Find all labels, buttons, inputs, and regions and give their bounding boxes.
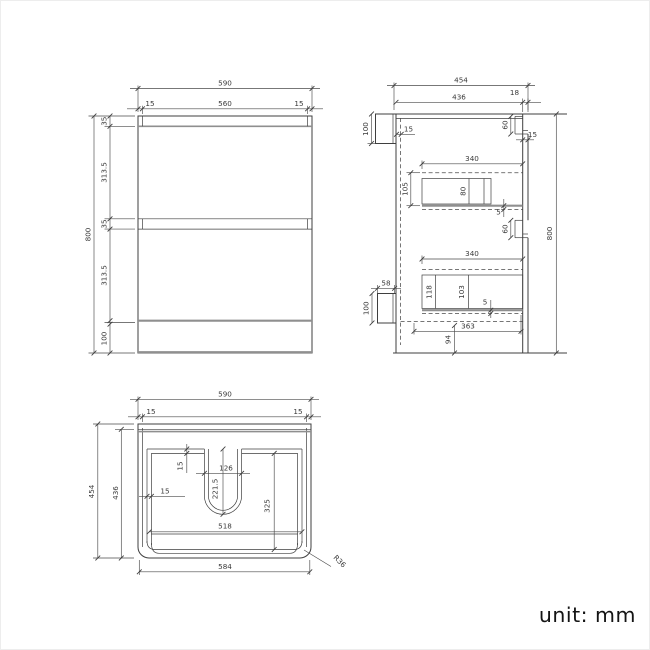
dim-side-carcass-depth: 436 (452, 93, 466, 102)
front-view: 590 15 560 15 35 313.5 35 (84, 79, 324, 356)
dim-front-top-panel: 35 (100, 117, 109, 126)
dim-side-notch-mid: 60 (500, 224, 509, 234)
dim-plan-wall-left: 15 (160, 487, 169, 496)
side-view: 454 436 18 100 15 60 15 (361, 76, 567, 356)
dim-side-base-offset: 94 (444, 335, 453, 345)
front-view-outline (138, 116, 312, 353)
dim-plan-cutout-depth: 221.5 (211, 479, 220, 500)
dim-plan-inset-right: 15 (293, 407, 302, 416)
dim-side-drawer-top-depth: 340 (465, 154, 479, 163)
dim-side-overall-height: 800 (545, 226, 554, 240)
dim-plan-wall-back: 15 (175, 461, 184, 470)
dim-plan-inner-depth: 436 (111, 486, 120, 500)
dim-plan-base-width: 584 (218, 562, 232, 571)
dim-side-notch-top: 60 (500, 120, 509, 130)
dim-side-overall-depth: 454 (454, 76, 468, 85)
dim-side-drawer-bottom-depth: 340 (465, 249, 479, 258)
dim-plan-overall-depth: 454 (87, 484, 96, 498)
dim-front-drawer-lower: 313.5 (100, 265, 109, 286)
dim-front-overall-height: 800 (84, 227, 93, 241)
dim-plan-corner-radius: R36 (332, 553, 349, 570)
dim-side-base-depth: 363 (461, 322, 475, 331)
unit-label: unit: mm (539, 603, 636, 627)
dim-plan-cavity-depth: 325 (263, 499, 272, 513)
dim-side-back-panel: 15 (404, 125, 413, 134)
dim-plan-cavity-width: 518 (218, 522, 232, 531)
drawing-svg: 590 15 560 15 35 313.5 35 (1, 1, 650, 650)
dim-side-drawer-top-height: 105 (400, 182, 409, 196)
plan-view-dimensions: 590 15 15 454 436 15 (87, 390, 348, 576)
dim-plan-overall-width: 590 (218, 390, 232, 399)
plan-view: 590 15 15 454 436 15 (87, 390, 348, 576)
dim-front-inset-left: 15 (145, 99, 154, 108)
side-view-outline (375, 114, 567, 353)
dim-side-rail-bottom-width: 58 (381, 279, 391, 288)
dim-side-drawer-bottom-inner: 103 (457, 285, 466, 299)
dim-side-rail-top-height: 100 (361, 122, 370, 136)
dim-side-front-gap: 15 (528, 130, 537, 139)
dim-front-overall-width: 590 (218, 79, 232, 88)
dim-front-kick: 100 (100, 331, 109, 345)
dim-side-clearance-top: 5 (496, 208, 501, 217)
dim-side-front-thickness: 18 (510, 88, 520, 97)
dim-front-gap: 35 (100, 219, 109, 228)
dim-plan-cutout-width: 126 (219, 464, 233, 473)
dim-front-drawer-upper: 313.5 (100, 162, 109, 183)
dim-front-inset-right: 15 (294, 99, 303, 108)
dim-side-drawer-bottom-side: 118 (425, 285, 434, 299)
dim-side-drawer-top-inner: 80 (459, 186, 468, 196)
side-view-dimensions: 454 436 18 100 15 60 15 (361, 76, 559, 356)
dim-front-inner-width: 560 (218, 99, 232, 108)
vanity-technical-drawing: 590 15 560 15 35 313.5 35 (0, 0, 650, 650)
front-view-dimensions: 590 15 560 15 35 313.5 35 (84, 79, 324, 356)
dim-side-clearance-bottom: 5 (483, 298, 488, 307)
dim-plan-inset-left: 15 (146, 407, 155, 416)
dim-side-rail-bottom-height: 100 (362, 301, 371, 315)
